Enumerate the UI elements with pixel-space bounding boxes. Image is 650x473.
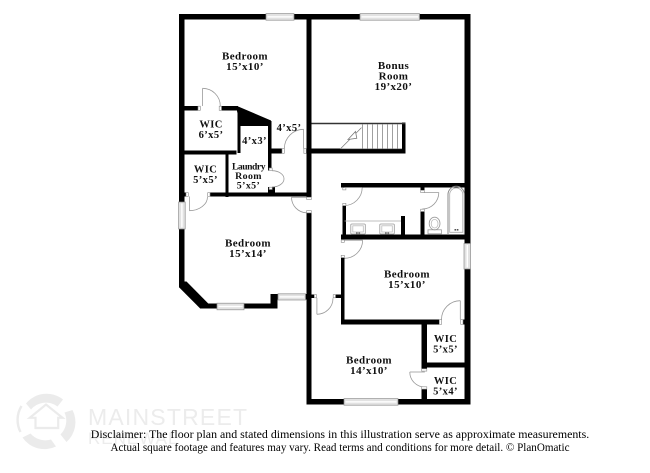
svg-text:WIC: WIC	[194, 165, 217, 176]
svg-text:5’x5’: 5’x5’	[237, 180, 260, 191]
svg-text:15’x10’: 15’x10’	[226, 61, 264, 73]
svg-text:19’x20’: 19’x20’	[375, 81, 413, 93]
svg-text:6’x5’: 6’x5’	[199, 130, 224, 141]
svg-text:4’x3’: 4’x3’	[242, 136, 267, 147]
svg-text:Disclaimer: The floor plan and: Disclaimer: The floor plan and stated di…	[91, 427, 589, 441]
svg-text:Actual square footage and feat: Actual square footage and features may v…	[110, 442, 569, 454]
svg-text:15’x10’: 15’x10’	[388, 279, 426, 291]
svg-text:WIC: WIC	[434, 334, 457, 345]
svg-text:5’x5’: 5’x5’	[433, 344, 458, 355]
svg-text:4’x5’: 4’x5’	[277, 123, 302, 134]
svg-text:14’x10’: 14’x10’	[350, 365, 388, 377]
svg-text:WIC: WIC	[199, 120, 222, 131]
svg-text:15’x14’: 15’x14’	[229, 248, 267, 260]
svg-text:WIC: WIC	[434, 376, 457, 387]
svg-text:5’x4’: 5’x4’	[433, 387, 458, 398]
svg-text:5’x5’: 5’x5’	[193, 175, 218, 186]
